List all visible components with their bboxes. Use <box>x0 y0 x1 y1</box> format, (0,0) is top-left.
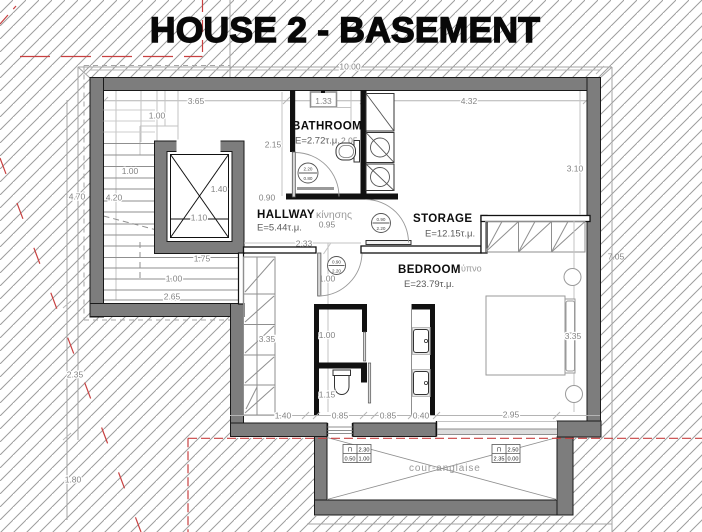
svg-text:1.00: 1.00 <box>359 457 370 463</box>
svg-text:Π: Π <box>348 448 352 454</box>
svg-text:1.00: 1.00 <box>319 330 336 340</box>
svg-text:HALLWAY: HALLWAY <box>257 209 315 221</box>
svg-text:2.20: 2.20 <box>304 167 313 172</box>
svg-text:2.35: 2.35 <box>67 370 84 380</box>
svg-text:3.65: 3.65 <box>188 96 205 106</box>
svg-text:2.35: 2.35 <box>494 457 505 463</box>
svg-text:E=2.72τ.μ.: E=2.72τ.μ. <box>295 136 340 147</box>
svg-text:BEDROOM: BEDROOM <box>398 264 461 276</box>
svg-text:1.15: 1.15 <box>319 390 336 400</box>
svg-text:HOUSE 2 - BASEMENT: HOUSE 2 - BASEMENT <box>150 10 540 50</box>
svg-text:0.90: 0.90 <box>332 260 341 265</box>
svg-text:0.95: 0.95 <box>319 220 336 230</box>
svg-text:1.80: 1.80 <box>65 475 82 485</box>
svg-text:1.40: 1.40 <box>275 411 292 421</box>
svg-text:E=5.44τ.μ.: E=5.44τ.μ. <box>257 223 302 234</box>
svg-text:1.33: 1.33 <box>315 96 332 106</box>
svg-text:1.10: 1.10 <box>191 213 208 223</box>
svg-text:1.75: 1.75 <box>194 254 211 264</box>
svg-text:0.90: 0.90 <box>377 217 386 222</box>
svg-text:1.00: 1.00 <box>149 111 166 121</box>
svg-text:2.65: 2.65 <box>164 292 181 302</box>
svg-text:BATHROOM: BATHROOM <box>292 121 362 133</box>
svg-text:3.35: 3.35 <box>565 331 582 341</box>
svg-text:4.70: 4.70 <box>69 192 86 202</box>
svg-text:1.00: 1.00 <box>166 274 183 284</box>
svg-text:3.10: 3.10 <box>567 164 584 174</box>
svg-text:2.20: 2.20 <box>377 226 386 231</box>
svg-text:Π: Π <box>497 448 501 454</box>
svg-text:cour-anglaise: cour-anglaise <box>409 463 481 474</box>
svg-text:0.85: 0.85 <box>380 411 397 421</box>
svg-text:1.00: 1.00 <box>122 166 139 176</box>
svg-text:2.20: 2.20 <box>332 269 341 274</box>
svg-text:0.90: 0.90 <box>259 193 276 203</box>
svg-text:2.15: 2.15 <box>265 140 282 150</box>
svg-text:3.35: 3.35 <box>259 334 276 344</box>
svg-text:STORAGE: STORAGE <box>413 213 472 225</box>
svg-text:4.32: 4.32 <box>461 96 478 106</box>
svg-text:2.50: 2.50 <box>508 448 519 454</box>
svg-text:2.30: 2.30 <box>359 448 370 454</box>
svg-text:10.00: 10.00 <box>339 62 361 72</box>
svg-text:0.40: 0.40 <box>413 411 430 421</box>
svg-text:κίνησης: κίνησης <box>316 209 352 221</box>
svg-text:0.80: 0.80 <box>304 176 313 181</box>
svg-text:0.50: 0.50 <box>345 457 356 463</box>
svg-text:4.20: 4.20 <box>106 193 123 203</box>
svg-text:1.40: 1.40 <box>211 184 228 194</box>
svg-text:ύπνο: ύπνο <box>461 264 482 274</box>
svg-text:E=12.15τ.μ.: E=12.15τ.μ. <box>425 229 475 240</box>
svg-text:0.85: 0.85 <box>332 411 349 421</box>
svg-text:E=23.79τ.μ.: E=23.79τ.μ. <box>404 279 454 290</box>
svg-text:7.05: 7.05 <box>608 252 625 262</box>
svg-text:0.00: 0.00 <box>508 457 519 463</box>
svg-text:2.95: 2.95 <box>503 410 520 420</box>
